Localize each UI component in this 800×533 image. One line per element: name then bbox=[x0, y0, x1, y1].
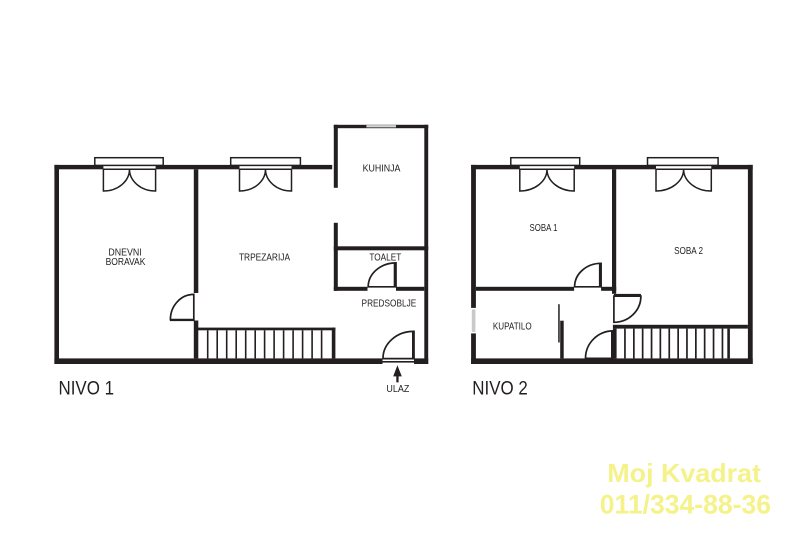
svg-text:NIVO 1: NIVO 1 bbox=[59, 379, 115, 400]
svg-text:KUHINJA: KUHINJA bbox=[363, 163, 401, 174]
svg-text:BORAVAK: BORAVAK bbox=[106, 257, 146, 268]
svg-text:SOBA 2: SOBA 2 bbox=[674, 246, 703, 257]
svg-text:KUPATILO: KUPATILO bbox=[493, 322, 532, 333]
svg-text:PREDSOBLJE: PREDSOBLJE bbox=[362, 299, 417, 310]
svg-text:ULAZ: ULAZ bbox=[386, 384, 409, 395]
svg-text:SOBA 1: SOBA 1 bbox=[530, 223, 558, 234]
svg-text:011/334-88-36: 011/334-88-36 bbox=[600, 490, 771, 520]
svg-text:NIVO 2: NIVO 2 bbox=[472, 379, 528, 400]
svg-text:TOALET: TOALET bbox=[369, 253, 401, 264]
svg-text:Moj Kvadrat: Moj Kvadrat bbox=[607, 458, 761, 488]
svg-text:TRPEZARIJA: TRPEZARIJA bbox=[239, 253, 290, 264]
